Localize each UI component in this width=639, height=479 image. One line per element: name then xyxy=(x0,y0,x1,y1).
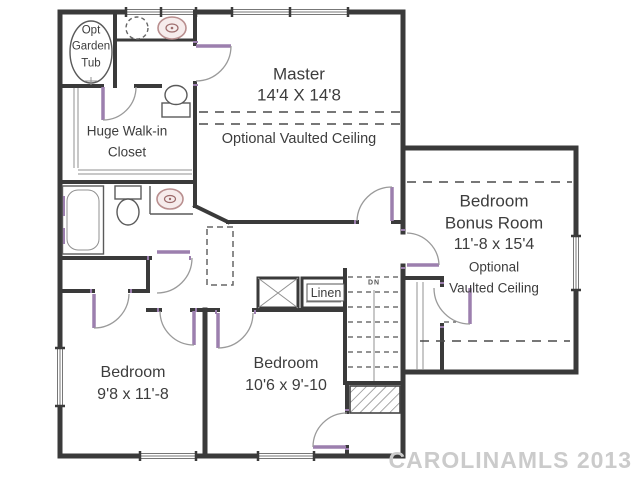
master-room-label: Master xyxy=(273,66,325,83)
vanity-sink-closet xyxy=(162,86,190,118)
linen-closet-label: Linen xyxy=(311,287,342,300)
bonus-ceiling-note-line2: Vaulted Ceiling xyxy=(449,281,539,295)
sink-master-bath xyxy=(158,17,186,39)
master-ceiling-note: Optional Vaulted Ceiling xyxy=(222,132,377,147)
sink-hall-bath xyxy=(150,186,193,214)
bonus-ceiling-note-line1: Optional xyxy=(469,260,519,274)
toilet-master-bath xyxy=(126,17,148,39)
stairs-down xyxy=(348,277,401,381)
walk-in-closet-label-line1: Huge Walk-in xyxy=(87,124,168,138)
bedroom-left-label: Bedroom xyxy=(101,365,166,381)
garden-tub-label-line1: Opt xyxy=(82,25,101,37)
bonus-room-label-line2: Bonus Room xyxy=(445,215,543,232)
garden-tub-label-line3: Tub xyxy=(81,58,100,70)
walk-in-closet-label-line2: Closet xyxy=(108,145,146,159)
bonus-room-dims: 11'-8 x 15'4 xyxy=(454,237,535,253)
bedroom-middle-label: Bedroom xyxy=(254,356,319,372)
bedroom-middle-dims: 10'6 x 9'-10 xyxy=(245,378,327,394)
bonus-room-label-line1: Bedroom xyxy=(460,193,529,210)
master-room-dims: 14'4 X 14'8 xyxy=(257,87,341,104)
chase-box xyxy=(258,278,298,308)
bathtub-hall-bath xyxy=(63,186,104,254)
bedroom-left-dims: 9'8 x 11'-8 xyxy=(97,387,169,403)
attic-access xyxy=(207,227,233,285)
watermark: CAROLINAMLS 2013 xyxy=(389,447,632,474)
garden-tub-label-line2: Garden xyxy=(72,41,110,53)
stairs-down-label: DN xyxy=(368,280,380,287)
hatched-storage-area xyxy=(350,386,400,413)
floor-plan: Opt Garden Tub Master 14'4 X 14'8 Option… xyxy=(0,0,639,479)
toilet-hall-bath xyxy=(115,186,141,225)
